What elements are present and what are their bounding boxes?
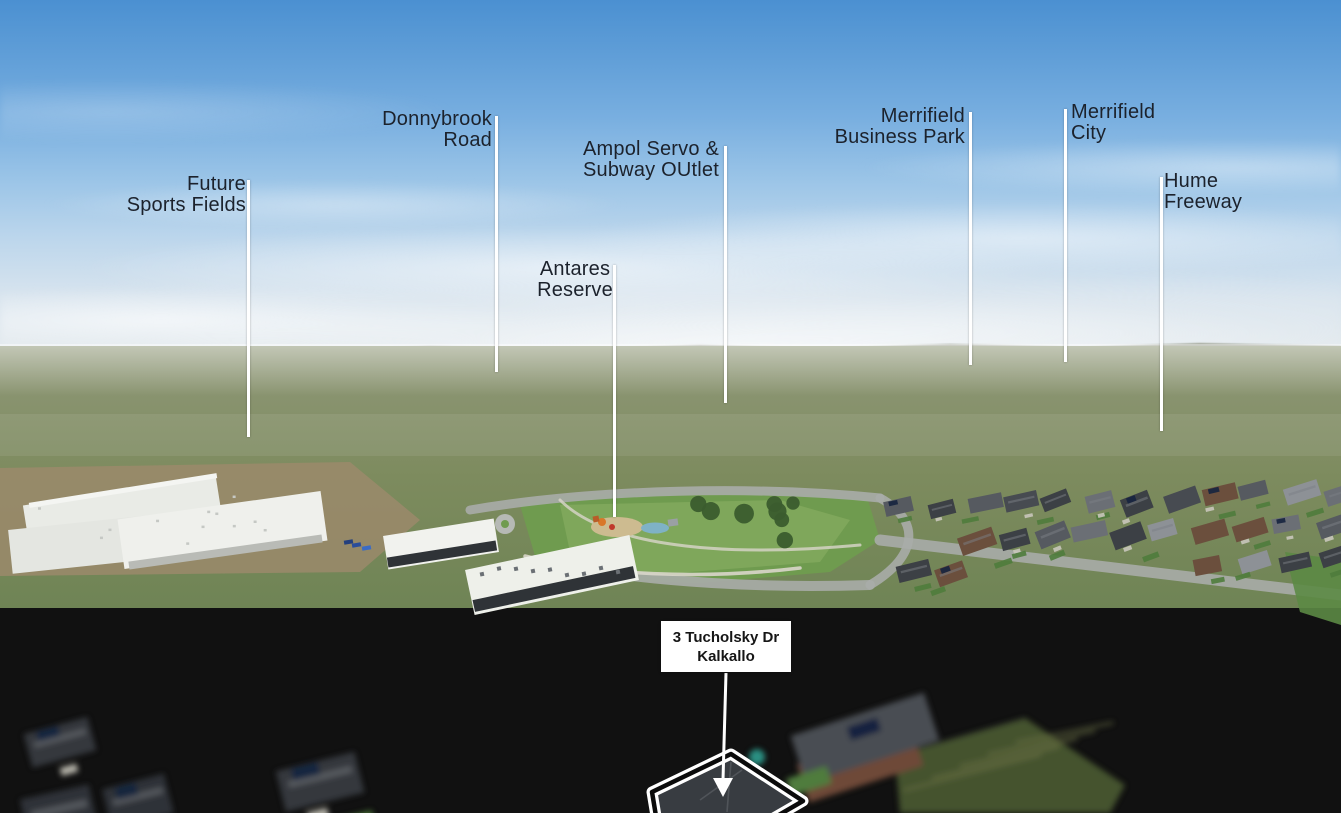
leader-line-antares-reserve [613, 265, 616, 517]
callout-text-line1: Antares [540, 258, 610, 280]
address-line1: 3 Tucholsky Dr [673, 628, 779, 647]
aerial-photo-stage: FutureSports Fields DonnybrookRoad Ampol… [0, 0, 1341, 813]
callout-text-line2: Reserve [537, 279, 613, 301]
property-address-box: 3 Tucholsky Dr Kalkallo [661, 621, 791, 672]
callout-antares-reserve: AntaresReserve [527, 259, 623, 301]
callout-text-line2: Sports Fields [127, 194, 246, 216]
callout-ampol-servo: Ampol Servo &Subway OUtlet [581, 139, 721, 181]
callout-merrifield-city: MerrifieldCity [1071, 102, 1155, 144]
callout-text-line1: Donnybrook [382, 108, 492, 130]
callout-text-line1: Hume [1164, 170, 1218, 192]
address-line2: Kalkallo [697, 647, 755, 666]
callout-merrifield-business-park: MerrifieldBusiness Park [835, 106, 965, 148]
callout-text-line1: Future [187, 173, 246, 195]
callout-text-line2: Business Park [835, 126, 965, 148]
leader-line-ampol-servo [724, 146, 727, 403]
leader-line-merrifield-business-park [969, 112, 972, 365]
callout-text-line1: Ampol Servo & [583, 138, 719, 160]
callout-text-line1: Merrifield [1071, 101, 1155, 123]
leader-line-merrifield-city [1064, 109, 1067, 362]
callout-hume-freeway: HumeFreeway [1164, 171, 1242, 213]
leader-arrow [713, 673, 733, 797]
callout-text-line1: Merrifield [881, 105, 965, 127]
leader-line-donnybrook-road [495, 116, 498, 372]
callout-text-line2: City [1071, 122, 1106, 144]
callout-text-line2: Road [443, 129, 492, 151]
callout-donnybrook-road: DonnybrookRoad [382, 109, 492, 151]
callout-text-line2: Freeway [1164, 191, 1242, 213]
leader-line-future-sports-fields [247, 180, 250, 437]
callout-text-line2: Subway OUtlet [583, 159, 719, 181]
callout-future-sports-fields: FutureSports Fields [127, 174, 246, 216]
leader-line-hume-freeway [1160, 177, 1163, 431]
